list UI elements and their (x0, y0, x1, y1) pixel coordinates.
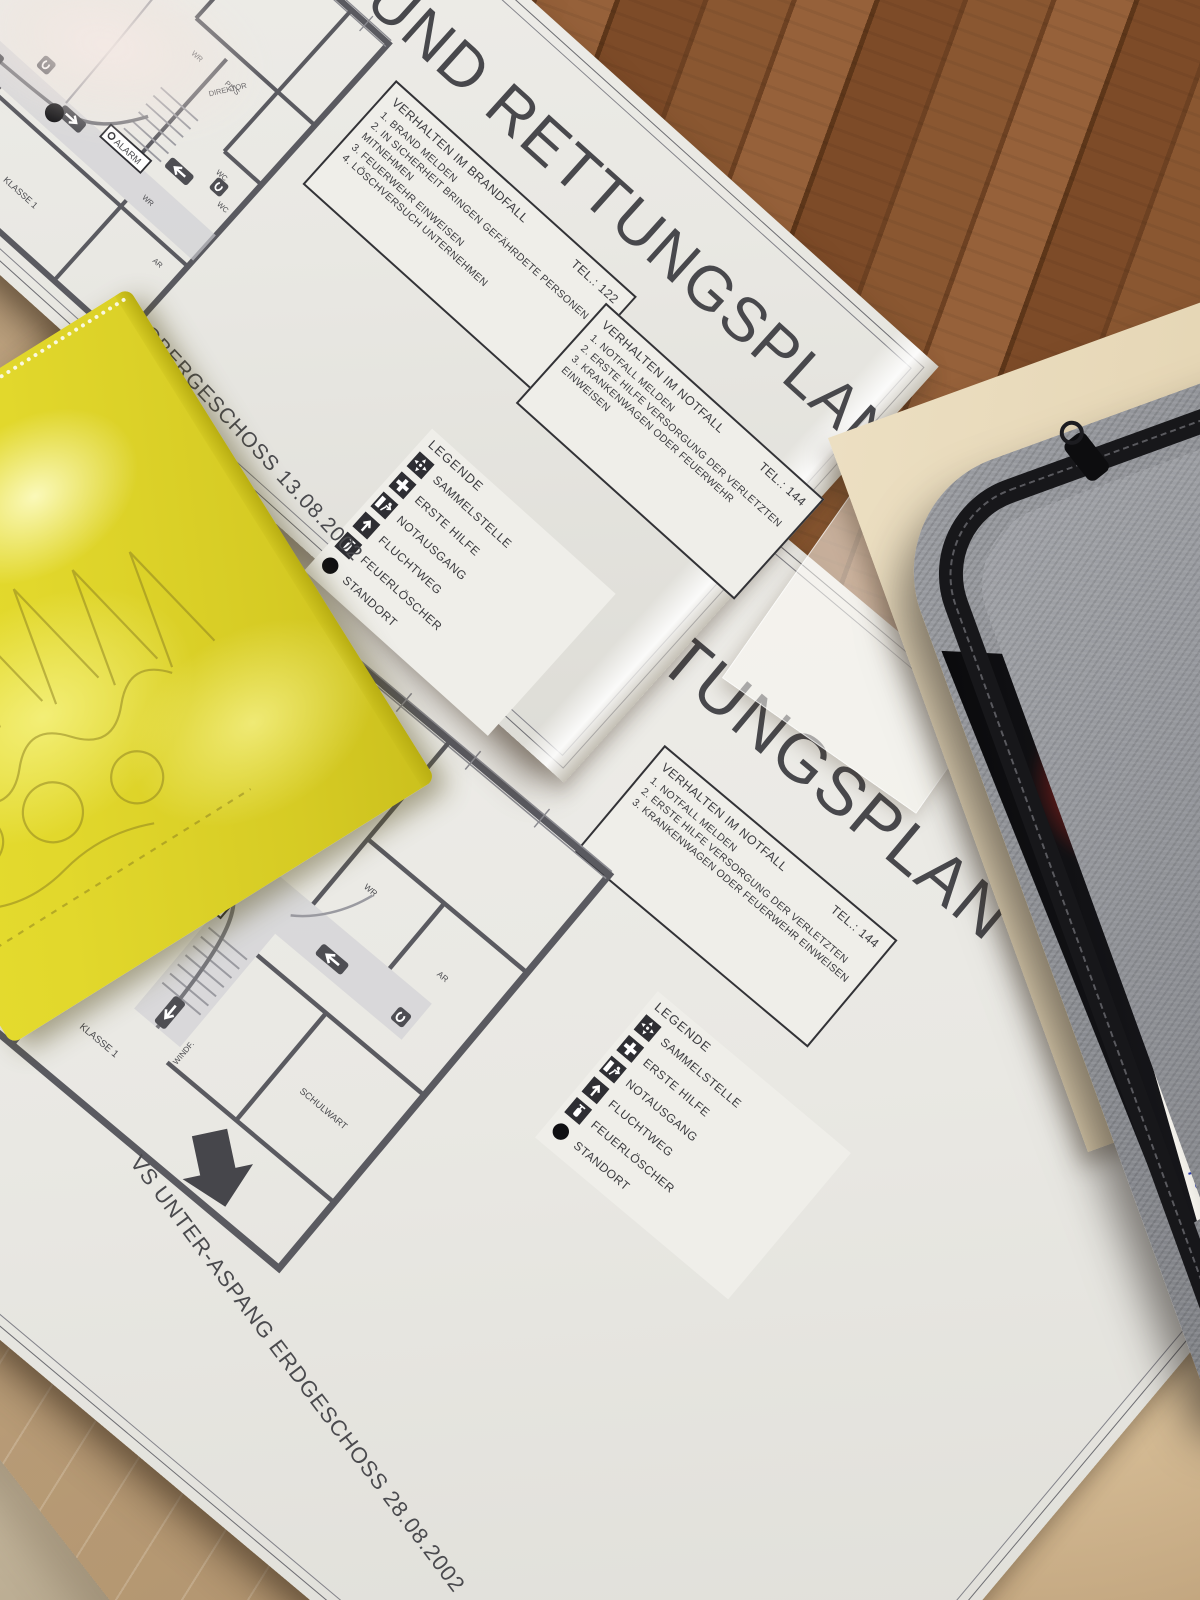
room-label: KLASSE 1 (1, 175, 39, 211)
emergency-exit-icon (370, 491, 398, 519)
room-label: AR (435, 969, 450, 984)
fire-extinguisher-icon (564, 1097, 592, 1125)
room-label: PAUSENRAUM (235, 0, 292, 1)
room-label: KLASSE 1 (77, 1021, 121, 1060)
room-label: WR (362, 882, 379, 899)
escape-route-icon (352, 511, 380, 539)
room-label: WC (215, 200, 231, 215)
assembly-point-icon (406, 451, 434, 479)
room-label: SCHULWART (297, 1086, 349, 1132)
location-dot-icon (547, 1118, 575, 1146)
room-label: WINDF. (171, 1040, 196, 1067)
escape-route-icon (581, 1076, 609, 1104)
assembly-point-icon (633, 1014, 661, 1042)
room-label: AR (151, 256, 165, 270)
emergency-exit-icon (599, 1055, 627, 1083)
exit-arrow (174, 1125, 260, 1214)
first-aid-icon (388, 471, 416, 499)
photo-canvas: FLUCHT- UND RETTUNGSPLAN VERHALTEN IM NO… (0, 0, 1200, 1600)
escape-route-arrow (164, 157, 195, 187)
first-aid-icon (616, 1035, 644, 1063)
